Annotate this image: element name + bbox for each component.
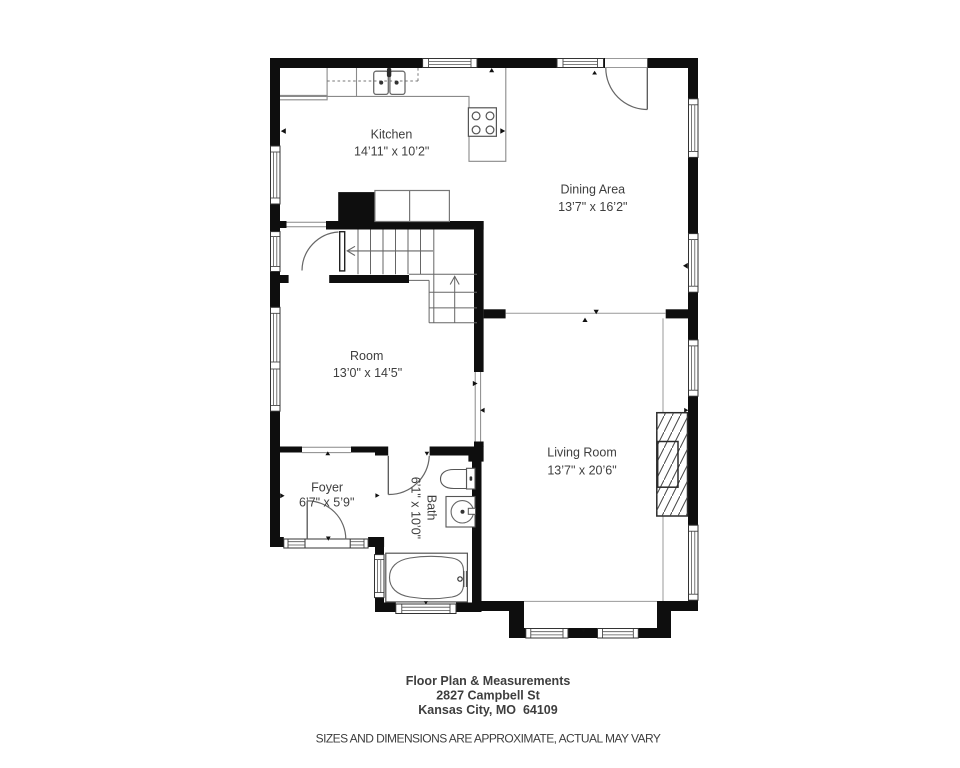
svg-text:SIZES AND DIMENSIONS ARE APPRO: SIZES AND DIMENSIONS ARE APPROXIMATE, AC… [316,732,661,746]
svg-text:Bath: Bath [424,495,438,521]
svg-text:Living Room: Living Room [547,446,616,460]
svg-text:13’7" x 16’2": 13’7" x 16’2" [558,200,627,214]
svg-text:13’0" x 14’5": 13’0" x 14’5" [333,366,402,380]
svg-text:Floor Plan & Measurements: Floor Plan & Measurements [406,674,571,688]
svg-text:Room: Room [350,349,383,363]
svg-text:Foyer: Foyer [311,480,343,494]
svg-text:Kansas City, MO 64109: Kansas City, MO 64109 [418,703,557,717]
svg-text:6’1" x 10’0": 6’1" x 10’0" [409,477,423,539]
svg-text:13’7" x 20’6": 13’7" x 20’6" [547,464,616,478]
svg-text:2827 Campbell St: 2827 Campbell St [436,689,540,703]
svg-text:6’7" x 5’9": 6’7" x 5’9" [299,496,354,510]
svg-text:Dining Area: Dining Area [560,183,625,197]
svg-text:Kitchen: Kitchen [371,128,413,142]
svg-text:14’11" x 10’2": 14’11" x 10’2" [354,145,429,159]
